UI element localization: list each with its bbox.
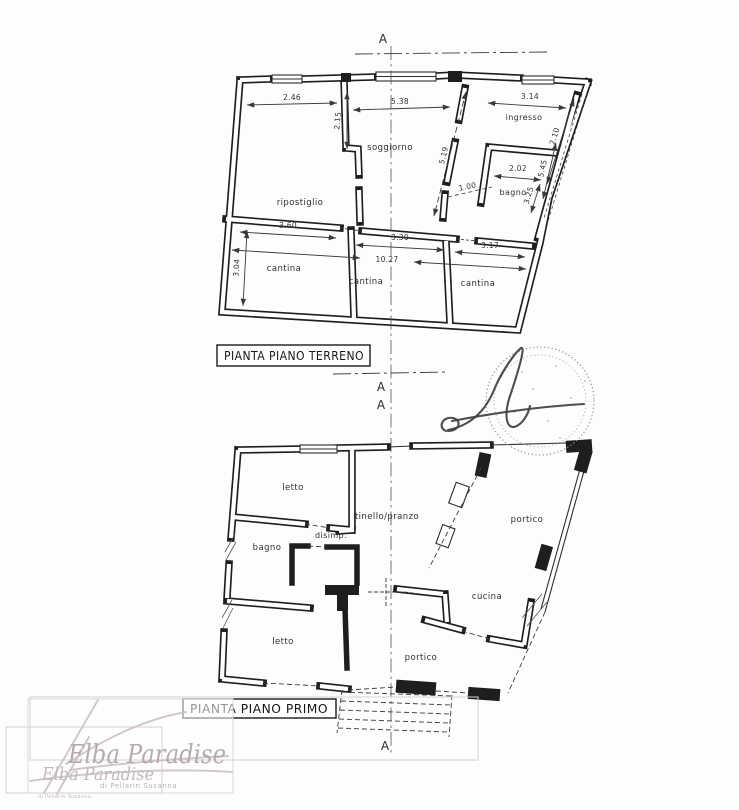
dim-bagno-width: 2.02 <box>509 164 527 173</box>
ground-floor-room-labels: ripostiglio soggiorno ingresso bagno can… <box>267 113 543 289</box>
room-label-letto-1: letto <box>282 483 304 493</box>
section-marker-mid1: A <box>377 380 386 394</box>
room-label-cantina-2: cantina <box>349 277 384 287</box>
dim-ingresso-width: 3.14 <box>521 92 539 101</box>
brand-subtext: di Pellarin Susanna <box>100 782 177 790</box>
dim-soggiorno-width: 5.38 <box>391 97 409 106</box>
dim-corridor: 2.10 <box>548 126 562 146</box>
room-label-tinello-pranzo: tinello/pranzo <box>355 512 419 522</box>
room-label-disimp: disimp. <box>315 531 347 540</box>
dim-ripostiglio-width: 2.46 <box>283 93 301 102</box>
dim-cantina3-width: 3.17 <box>481 241 499 250</box>
wall-junction-block <box>341 73 351 82</box>
first-floor-plan <box>222 439 593 737</box>
ground-floor-title: PIANTA PIANO TERRENO <box>217 345 370 366</box>
dim-cantina2-width: 3.30 <box>391 233 409 242</box>
pillar <box>449 482 470 507</box>
section-marker-top: A <box>379 32 388 46</box>
room-label-ripostiglio: ripostiglio <box>277 198 324 208</box>
brand-subtext-tiny: di Pellarin Susanna <box>38 794 91 800</box>
room-label-cantina-3: cantina <box>461 279 496 289</box>
floor-plan-drawing: A A A A 2.46 2.15 5.38 5.19 3.14 2.10 5.… <box>0 0 739 810</box>
room-label-cucina: cucina <box>472 592 502 602</box>
dim-cantina1-width: 3.60 <box>279 221 297 230</box>
room-label-soggiorno: soggiorno <box>367 143 413 153</box>
stamp-speckles <box>514 365 586 439</box>
room-label-ingresso: ingresso <box>506 113 543 122</box>
room-label-letto-2: letto <box>272 637 294 647</box>
scanned-floor-plan-page: A A A A 2.46 2.15 5.38 5.19 3.14 2.10 5.… <box>0 0 739 810</box>
section-line-top <box>355 52 548 54</box>
room-label-bagno-first: bagno <box>253 543 282 553</box>
dim-door: 1.00 <box>458 180 477 193</box>
room-label-bagno-ground: bagno <box>499 188 526 197</box>
dim-right-side: 5.45 <box>536 159 549 178</box>
section-axis: A A A A <box>333 32 548 756</box>
ground-floor-title-text: PIANTA PIANO TERRENO <box>224 349 364 363</box>
section-marker-mid2: A <box>377 398 386 412</box>
stamp <box>442 347 594 455</box>
stamp-circle-outer <box>486 347 594 455</box>
portico-railing <box>541 451 589 612</box>
first-floor-room-labels: letto tinello/pranzo portico disimp. bag… <box>253 483 544 663</box>
dim-top-height: 2.15 <box>332 111 343 130</box>
dim-cantina-height: 3.04 <box>231 259 241 277</box>
wall-junction-block <box>448 71 462 82</box>
room-label-portico-2: portico <box>405 653 438 663</box>
signature <box>442 348 584 431</box>
dim-total-width: 10.27 <box>376 255 399 264</box>
room-label-cantina-1: cantina <box>267 264 302 274</box>
room-label-portico-1: portico <box>511 515 544 525</box>
section-marker-bottom: A <box>381 739 390 753</box>
